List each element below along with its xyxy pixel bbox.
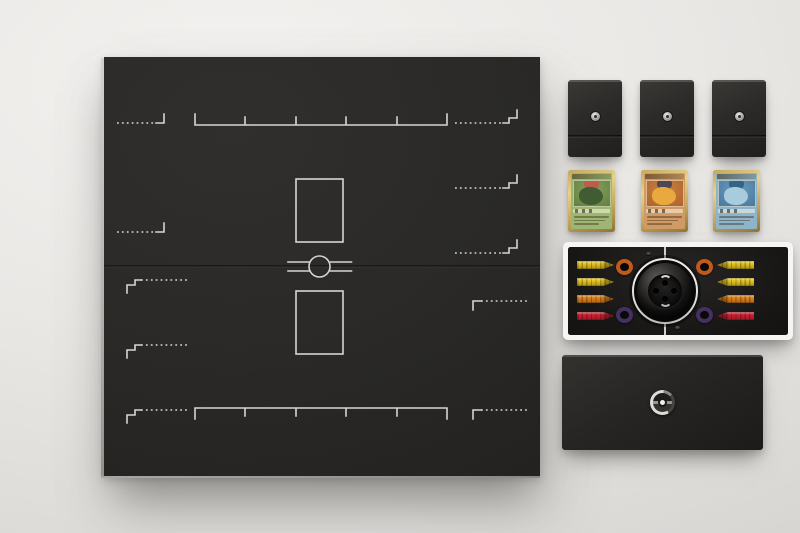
card-text-line (574, 220, 605, 222)
corner-mark-top-left-1 (156, 114, 164, 123)
card-pokemon-figure (724, 187, 748, 205)
damage-counter-left-3 (577, 294, 614, 304)
card-text-line (719, 223, 744, 225)
step-mark-bottom-left-2 (127, 345, 141, 358)
pokeball-logo-band (653, 393, 672, 412)
card-text-line (574, 216, 609, 218)
product-photo (0, 0, 800, 533)
pokeball-emblem-icon (663, 112, 672, 121)
card-text-line (574, 223, 599, 225)
card-face (571, 173, 612, 229)
coin-face-dot (662, 296, 668, 302)
card-name-bar (717, 174, 756, 179)
tray-bed (568, 247, 788, 335)
pokeball-coin (637, 263, 693, 319)
tray-peg-top (646, 252, 651, 256)
deck-box-3 (712, 80, 766, 157)
card-energy-row (573, 209, 610, 213)
deck-box-lid-seam (712, 135, 766, 138)
card-text-line (647, 216, 682, 218)
corner-mark-left-2 (156, 223, 164, 232)
storage-box (562, 355, 763, 450)
card-energy-row (646, 209, 683, 213)
step-mark-top-right-2 (503, 175, 517, 188)
coin-well (632, 258, 698, 324)
card-text-line (719, 216, 754, 218)
coin-face-dot (662, 280, 668, 286)
damage-counter-right-2 (717, 277, 754, 287)
pokeball-divider-circle (309, 256, 330, 277)
deck-box-lid-seam (568, 135, 622, 138)
accessory-tray (563, 242, 793, 340)
deck-box-lid-seam (640, 135, 694, 138)
card-artwork (646, 180, 684, 207)
damage-counter-left-4 (577, 311, 614, 321)
damage-counter-right-4 (717, 311, 754, 321)
bench-line-top (195, 114, 447, 125)
damage-counter-right-3 (717, 294, 754, 304)
bench-line-bottom (195, 408, 447, 419)
board-markings (104, 57, 540, 476)
coin-face-dot (653, 288, 659, 294)
status-ring-bottom-left (616, 307, 633, 323)
card-energy-row (718, 209, 755, 213)
step-mark-bottom-left-3 (127, 410, 141, 423)
pokeball-logo-icon (650, 390, 675, 415)
pokeball-emblem-icon (735, 112, 744, 121)
card-artwork (718, 180, 756, 207)
card-face (716, 173, 757, 229)
card-water (713, 170, 760, 232)
card-face (644, 173, 685, 229)
card-name-bar (572, 174, 611, 179)
pokeball-emblem-icon (591, 112, 600, 121)
tray-peg-bottom (675, 326, 680, 330)
card-artwork (573, 180, 611, 207)
status-ring-top-right (696, 259, 713, 275)
coin-face-dot (671, 288, 677, 294)
card-text-line (647, 220, 678, 222)
step-mark-bottom-left-1 (127, 280, 141, 293)
card-grass (568, 170, 615, 232)
deck-box-2 (640, 80, 694, 157)
card-text-line (647, 223, 672, 225)
active-zone-top (296, 179, 343, 242)
corner-mark-bottom-right-2 (473, 410, 481, 419)
damage-counter-left-1 (577, 260, 614, 270)
corner-mark-bottom-right-1 (473, 301, 481, 310)
pokeball-logo-button (658, 398, 667, 407)
card-fire (641, 170, 688, 232)
card-text-line (719, 220, 750, 222)
card-name-bar (645, 174, 684, 179)
card-pokemon-figure (652, 187, 676, 205)
status-ring-bottom-right (696, 307, 713, 323)
damage-counter-right-1 (717, 260, 754, 270)
deck-box-1 (568, 80, 622, 157)
card-pokemon-figure (579, 187, 603, 205)
game-board (104, 57, 540, 476)
damage-counter-left-2 (577, 277, 614, 287)
step-mark-top-right-3 (503, 240, 517, 253)
step-mark-top-right-1 (503, 110, 517, 123)
pokeball-divider-lines (288, 262, 352, 271)
pokeball-coin-face (648, 274, 682, 308)
active-zone-bottom (296, 291, 343, 354)
status-ring-top-left (616, 259, 633, 275)
